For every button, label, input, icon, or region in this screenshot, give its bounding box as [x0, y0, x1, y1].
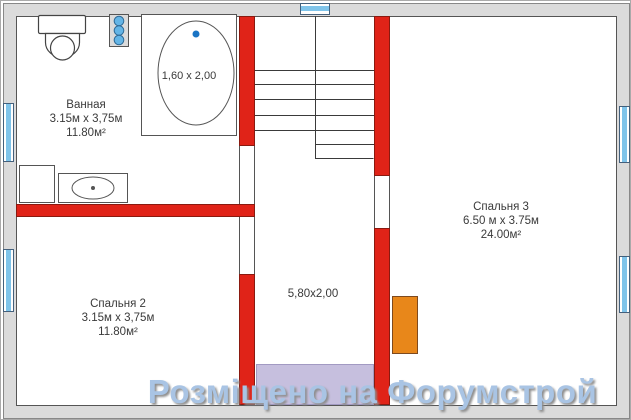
- room-area: 24.00м²: [441, 228, 561, 242]
- room-name: Спальня 3: [441, 200, 561, 214]
- wall-bathroom-bedroom2: [16, 204, 255, 217]
- floor-plan: 1,60 x 2,00 Ванная 3.15м x 3,75м 11.80м²…: [0, 0, 631, 420]
- room-area: 11.80м²: [58, 325, 178, 339]
- corridor-size-label: 5,80х2,00: [263, 287, 363, 301]
- window-icon-left-upper: [3, 103, 14, 162]
- room-name: Спальня 2: [58, 297, 178, 311]
- washing-machine-icon: [19, 165, 55, 203]
- wardrobe-block: [392, 296, 418, 354]
- window-icon-right-lower: [619, 256, 630, 313]
- room-name: Ванная: [26, 98, 146, 112]
- room-label-bathroom: Ванная 3.15м x 3,75м 11.80м²: [26, 98, 146, 140]
- window-icon-right-upper: [619, 106, 630, 163]
- room-area: 11.80м²: [26, 126, 146, 140]
- room-dims: 3.15м x 3,75м: [58, 311, 178, 325]
- door-opening-bathroom: [239, 146, 255, 204]
- staircase: [255, 16, 374, 159]
- window-icon-top: [300, 3, 330, 15]
- room-label-bedroom3: Спальня 3 6.50 м x 3.75м 24.00м²: [441, 200, 561, 242]
- wall-stairwell-right: [374, 16, 390, 176]
- radiator-icon: [109, 14, 129, 47]
- room-dims: 3.15м x 3,75м: [26, 112, 146, 126]
- toilet-icon: [37, 14, 87, 68]
- bathtub-size-label: 1,60 x 2,00: [141, 70, 237, 82]
- watermark: Розміщено на Форумстрой: [142, 373, 603, 411]
- wall-stairwell-left: [239, 16, 255, 146]
- room-dims: 6.50 м x 3.75м: [441, 214, 561, 228]
- window-icon-left-lower: [3, 249, 14, 312]
- sink-icon: [58, 173, 128, 203]
- room-label-bedroom2: Спальня 2 3.15м x 3,75м 11.80м²: [58, 297, 178, 339]
- door-opening-bedroom2: [239, 217, 255, 274]
- door-opening-bedroom3: [374, 176, 390, 228]
